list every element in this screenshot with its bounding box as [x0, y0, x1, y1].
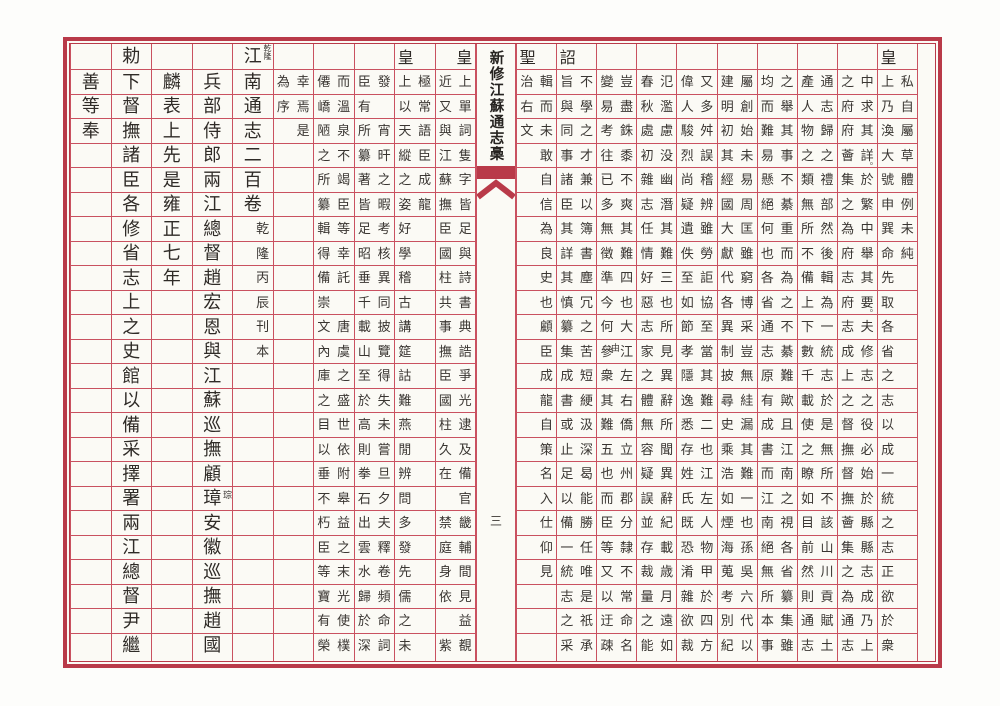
main-text-char: 顧	[193, 463, 233, 485]
grid-cell: 儒	[395, 584, 435, 609]
small-text-char-right: 光	[455, 393, 475, 408]
small-text-char-right: 是	[817, 417, 837, 432]
grid-cell	[71, 461, 111, 486]
small-text-char-right: 窮	[737, 270, 757, 285]
grid-cell: 志上	[838, 633, 877, 658]
small-text-char-right: 且	[777, 417, 797, 432]
grid-cell: 安	[193, 510, 233, 535]
grid-cell: 撫誥	[436, 339, 476, 364]
honorific-band	[274, 44, 314, 69]
small-text-char-right: 其	[697, 368, 717, 383]
small-text-char-right: 誥	[455, 344, 475, 359]
small-text-char-right: 中	[857, 221, 877, 236]
grid-cell: 各	[878, 314, 917, 339]
small-text-char-right: 考	[374, 221, 394, 236]
small-text-char-left: 惡	[637, 295, 657, 310]
small-text-char-right: 統	[817, 344, 837, 359]
grid-cell: 以常	[597, 584, 636, 609]
small-text-char-right: 當	[697, 344, 717, 359]
small-text-char-right: 未	[737, 148, 757, 163]
small-text-char-right: 博	[737, 295, 757, 310]
small-text-char-right: 極	[415, 74, 435, 89]
small-text-char-left: 為	[274, 74, 294, 89]
grid-cell: 裁歳	[637, 559, 676, 584]
grid-cell: 自	[517, 412, 556, 437]
honorific-band: 皇	[436, 44, 476, 69]
small-text-char-right: 宵	[374, 123, 394, 138]
grid-cell: 朽益	[314, 510, 354, 535]
small-text-char-left: 今	[597, 295, 617, 310]
grid-cell: 並紀	[637, 510, 676, 535]
small-text-char-left: 庫	[314, 368, 334, 383]
small-text-char-right: 與	[455, 246, 475, 261]
small-text-char-right: 詎	[697, 270, 717, 285]
grid-cell: 辰	[233, 290, 273, 315]
small-text-char-left: 上	[838, 368, 858, 383]
grid-cell	[274, 633, 314, 658]
grid-cell: 考銖	[597, 118, 636, 143]
grid-cell	[152, 388, 192, 413]
honorific-band	[718, 44, 757, 69]
main-text-char: 下	[112, 71, 152, 93]
small-text-char-left: 志	[878, 540, 898, 555]
small-text-char-right: 夫	[374, 515, 394, 530]
grid-cell: 所宵	[355, 118, 395, 143]
small-text-char-right: 後	[817, 246, 837, 261]
small-text-char-left: 千	[798, 368, 818, 383]
small-text-char-left: 國	[718, 197, 738, 212]
small-text-char-left: 成	[557, 368, 577, 383]
grid-cell: 志	[878, 535, 917, 560]
small-text-char-right: 臣	[537, 344, 557, 359]
left-text-column-9: 勅下督撫諸臣各修省志上之史館以備采擇署兩江總督尹繼	[112, 44, 153, 661]
small-text-char-right: 集	[777, 613, 797, 628]
small-text-char-left: 發	[395, 540, 415, 555]
small-text-char-right: 四	[617, 270, 637, 285]
small-text-char-left: 拳	[355, 466, 375, 481]
main-text-char: 等	[71, 95, 111, 117]
small-text-char-left: 紀	[718, 638, 738, 653]
grid-cell: 序焉	[274, 94, 314, 119]
grid-cell: 前山	[798, 535, 837, 560]
small-text-char-right: 省	[777, 564, 797, 579]
small-text-char-left: 疑	[677, 197, 697, 212]
small-text-char-left: 無	[637, 417, 657, 432]
small-text-char-left: 臣	[436, 221, 456, 236]
main-text-char: 督	[112, 585, 152, 607]
small-text-char-left: 得	[314, 246, 334, 261]
small-text-char-left: 衆	[878, 638, 898, 653]
grid-cell: 水卷	[355, 559, 395, 584]
grid-cell: 江	[193, 363, 233, 388]
grid-cell: 上為	[798, 290, 837, 315]
grid-cell	[274, 461, 314, 486]
grid-cell: 駿舛	[677, 118, 716, 143]
grid-cell	[274, 559, 314, 584]
small-text-char-right: 泉	[334, 123, 354, 138]
honorific-band: 詔	[557, 44, 596, 69]
small-text-char-right: 不	[817, 491, 837, 506]
grid-cell: 隆	[233, 241, 273, 266]
left-text-column-10: 善等奉	[70, 44, 112, 661]
grid-cell: 雜幽	[637, 167, 676, 192]
grid-cell: 體辭	[637, 388, 676, 413]
grid-cell: 南	[233, 69, 273, 94]
small-text-char-left: 懸	[758, 172, 778, 187]
small-text-char-left: 難	[597, 417, 617, 432]
small-text-char-left: 皆	[355, 197, 375, 212]
grid-cell: 備	[112, 412, 152, 437]
grid-cell: 又單	[436, 94, 476, 119]
small-text-char-right: 川	[817, 564, 837, 579]
small-text-char-left: 朽	[314, 515, 334, 530]
grid-cell: 等末	[314, 559, 354, 584]
grid-cell: 五立	[597, 437, 636, 462]
grid-cell: 史漏	[718, 412, 757, 437]
grid-cell: 榮樸	[314, 633, 354, 658]
small-text-char-left: 疑	[637, 466, 657, 481]
grid-cell: 上志	[838, 363, 877, 388]
grid-cell	[233, 510, 273, 535]
small-text-char-right: 名	[617, 638, 637, 653]
grid-cell	[233, 608, 273, 633]
small-text-char-left: 高	[355, 417, 375, 432]
small-text-char-right: 詩	[455, 270, 475, 285]
grid-cell: 難	[395, 388, 435, 413]
small-text-char-left: 本	[758, 613, 778, 628]
grid-cell: 孝當	[677, 339, 716, 364]
small-text-char-left: 渙	[878, 123, 898, 138]
small-text-char-left: 史	[718, 417, 738, 432]
main-text-char: 之	[112, 316, 152, 338]
grid-cell	[71, 290, 111, 315]
small-text-char-right: 冗	[577, 295, 597, 310]
main-text-char: 擇	[112, 463, 152, 485]
small-text-char-right: 易	[737, 172, 757, 187]
small-text-char-left: 之	[395, 613, 415, 628]
grid-cell: 成短	[557, 363, 596, 388]
small-text-char-right: 甲	[697, 564, 717, 579]
grid-cell: 淆甲	[677, 559, 716, 584]
grid-cell: 擇	[112, 461, 152, 486]
grid-cell	[152, 633, 192, 658]
grid-cell	[274, 339, 314, 364]
small-text-char-right: 其	[657, 221, 677, 236]
grid-cell: 易事	[758, 143, 797, 168]
small-text-char-left: 諸	[557, 172, 577, 187]
small-text-char-right: 志	[857, 564, 877, 579]
grid-cell: 先	[395, 559, 435, 584]
raised-honorific-char: 詔	[560, 44, 576, 68]
small-text-char-left: 佚	[677, 246, 697, 261]
main-text-char: 巡	[193, 414, 233, 436]
small-text-char-right: 采	[737, 319, 757, 334]
small-text-char-left: 迂	[597, 613, 617, 628]
grid-cell	[71, 510, 111, 535]
main-text-char: 宏	[193, 291, 233, 313]
small-text-char-left: 著	[355, 172, 375, 187]
small-text-char-left: 通	[758, 319, 778, 334]
main-text-char: 表	[152, 95, 192, 117]
grid-cell: 集苦	[557, 339, 596, 364]
small-text-char-right: 而	[777, 246, 797, 261]
grid-cell: 下	[112, 69, 152, 94]
grid-cell: 拳旦	[355, 461, 395, 486]
grid-cell: 與學	[557, 94, 596, 119]
grid-cell: 申例	[878, 192, 917, 217]
small-text-char-right: 該	[817, 515, 837, 530]
small-text-char-right: 顧	[537, 319, 557, 334]
small-text-char-right: 卷	[374, 564, 394, 579]
small-text-char-right: 僑	[617, 417, 637, 432]
grid-cell: 奉	[71, 118, 111, 143]
grid-cell: 為中	[838, 216, 877, 241]
small-text-char-left: 薈	[838, 515, 858, 530]
grid-cell: 容聞	[637, 437, 676, 462]
small-text-char-left: 先	[395, 564, 415, 579]
grid-cell	[233, 633, 273, 658]
small-text-char-left: 姿	[395, 197, 415, 212]
tiny-annotation: 琮	[223, 491, 232, 500]
grid-cell: 上	[112, 290, 152, 315]
grid-cell: 年	[152, 265, 192, 290]
small-text-char-right: 異	[374, 270, 394, 285]
small-text-char-left: 量	[637, 589, 657, 604]
main-text-char: 先	[152, 144, 192, 166]
grid-cell: 煙也	[718, 510, 757, 535]
raised-honorific-char: 皇	[456, 44, 472, 68]
small-text-char-left: 命	[878, 246, 898, 261]
main-text-char: 志	[112, 267, 152, 289]
small-text-char-right: 短	[577, 368, 597, 383]
small-text-char-right: 輯	[817, 270, 837, 285]
grid-cell: 也州	[597, 461, 636, 486]
grid-cell: 閒	[395, 437, 435, 462]
honorific-band: 勅	[112, 44, 152, 69]
small-text-char-right: 承	[577, 638, 597, 653]
small-text-char-left: 統	[878, 491, 898, 506]
grid-cell: 烈誤	[677, 143, 716, 168]
grid-cell: 今也	[597, 290, 636, 315]
grid-cell: 瞭所	[798, 461, 837, 486]
small-text-char-right: 役	[857, 417, 877, 432]
small-text-char-left: 近	[436, 74, 456, 89]
small-text-char-left: 秋	[637, 99, 657, 114]
grid-cell: 名	[517, 461, 556, 486]
main-text-char: 繼	[112, 634, 152, 656]
small-text-char-right: 之	[777, 74, 797, 89]
small-text-char-left: 處	[637, 123, 657, 138]
small-text-char-right: 異	[657, 466, 677, 481]
small-text-char-left: 而	[597, 491, 617, 506]
grid-cell: 丙	[233, 265, 273, 290]
small-text-char-left: 欲	[677, 613, 697, 628]
small-text-char-right: 不	[577, 74, 597, 89]
small-text-char-left: 所	[355, 123, 375, 138]
small-text-char-right: 命	[617, 613, 637, 628]
small-text-char-right: 之	[857, 393, 877, 408]
grid-cell: 止深	[557, 437, 596, 462]
grid-cell: 省之	[758, 290, 797, 315]
small-text-char-right: 禮	[817, 172, 837, 187]
small-text-char-right: 其	[737, 442, 757, 457]
grid-cell: 府舉	[838, 241, 877, 266]
small-text-char-left: 存	[637, 540, 657, 555]
small-text-char-right: 無	[737, 368, 757, 383]
grid-cell: 號體	[878, 167, 917, 192]
small-text-char-right: 賦	[817, 613, 837, 628]
small-text-char-right: 夫	[857, 319, 877, 334]
small-text-char-right: 見	[455, 589, 475, 604]
left-text-column-1: 皇近上又單與詞江隻蘇字撫皆臣足國與柱詩共書事典撫誥臣爭國光柱逮久及在備官禁畿庭輔…	[436, 44, 477, 661]
small-text-char-left: 古	[395, 295, 415, 310]
main-text-char: 撫	[112, 120, 152, 142]
small-text-char-right: 難	[777, 368, 797, 383]
grid-cell: 通不	[758, 314, 797, 339]
small-text-char-left: 榮	[314, 638, 334, 653]
grid-cell: 偉又	[677, 69, 716, 94]
small-text-char-right: 大	[617, 319, 637, 334]
small-text-char-left: 則	[355, 442, 375, 457]
grid-cell: 隱其	[677, 363, 716, 388]
grid-cell: 易盡	[597, 94, 636, 119]
grid-cell: 之	[878, 510, 917, 535]
grid-cell: 披無	[718, 363, 757, 388]
small-text-char-left: 通	[798, 613, 818, 628]
grid-cell: 則貢	[798, 584, 837, 609]
small-text-char-right: 於	[697, 589, 717, 604]
small-text-char-left: 集	[838, 540, 858, 555]
small-text-char-left: 出	[355, 515, 375, 530]
book-title: 新修江蘇通志槀	[486, 50, 507, 162]
grid-cell	[233, 559, 273, 584]
small-text-char-right: 六	[737, 589, 757, 604]
grid-cell	[517, 584, 556, 609]
small-text-char-left: 之	[878, 515, 898, 530]
grid-cell: 著之	[355, 167, 395, 192]
small-text-char-right: 一	[737, 491, 757, 506]
small-text-char-left: 好	[395, 221, 415, 236]
small-text-char-left: 事	[758, 638, 778, 653]
small-text-char-left: 以	[597, 589, 617, 604]
small-text-char-left: 又	[597, 564, 617, 579]
small-text-char-left: 撫	[436, 344, 456, 359]
right-margin-strip	[918, 44, 933, 661]
tiny-annotation: 由	[611, 344, 620, 353]
grid-cell: 昭核	[355, 241, 395, 266]
grid-cell: 一任	[557, 535, 596, 560]
small-text-char-right: 郡	[617, 491, 637, 506]
main-text-char: 南	[233, 71, 273, 93]
grid-cell: 制豈	[718, 339, 757, 364]
small-text-char-left: 成	[878, 442, 898, 457]
grid-cell: 如不	[798, 486, 837, 511]
small-text-char-right: 部	[817, 197, 837, 212]
grid-cell: 各博	[718, 290, 757, 315]
grid-cell: 嶠溫	[314, 94, 354, 119]
grid-cell: 采	[112, 437, 152, 462]
small-text-char-right: 不	[777, 319, 797, 334]
grid-cell: 事才	[557, 143, 596, 168]
small-text-char-left: 並	[637, 515, 657, 530]
grid-cell: 大草	[878, 143, 917, 168]
raised-honorific-char: 皇	[398, 44, 414, 68]
small-text-char-left: 初	[718, 123, 738, 138]
small-text-char-right: 異	[657, 368, 677, 383]
small-text-char-left: 之	[395, 172, 415, 187]
small-text-char-right: 南	[777, 466, 797, 481]
small-text-char-right: 方	[697, 638, 717, 653]
small-text-char-left: 僊	[314, 74, 334, 89]
grid-cell: 上私	[878, 69, 917, 94]
main-text-char: 上	[152, 120, 192, 142]
grid-cell	[152, 486, 192, 511]
grid-cell: 高未	[355, 412, 395, 437]
small-text-char-right: 中	[857, 74, 877, 89]
grid-cell	[152, 510, 192, 535]
small-text-char-right: 未	[374, 417, 394, 432]
left-text-column-3: 臣發有所宵纂旰著之皆暇足考昭核垂異千同載披山覽至得於失高未則嘗拳旦石夕出夫雲釋水…	[355, 44, 396, 661]
left-text-column-2: 皇上極以常天語縱臣之成姿龍好學稽古講筵詁難燕閒辨問多發先儒之未	[395, 44, 436, 661]
small-text-char-right: 屬	[737, 74, 757, 89]
small-text-char-right: 能	[577, 491, 597, 506]
small-text-char-right: 塵	[577, 270, 597, 285]
grid-cell: 本集	[758, 608, 797, 633]
small-text-char-right: 未	[897, 221, 917, 236]
grid-cell: 趙	[193, 265, 233, 290]
small-text-char-left: 府	[838, 99, 858, 114]
grid-cell: 以常	[395, 94, 435, 119]
small-text-char-right: 也	[657, 295, 677, 310]
main-text-char: 趙	[193, 267, 233, 289]
small-text-char-right: 以	[737, 638, 757, 653]
honorific-band	[314, 44, 354, 69]
small-text-char-right: 物	[697, 540, 717, 555]
grid-cell: 之中	[838, 69, 877, 94]
grid-cell	[71, 388, 111, 413]
small-text-char-left: 逸	[677, 393, 697, 408]
grid-cell: 志土	[798, 633, 837, 658]
grid-cell	[233, 437, 273, 462]
center-spine-column: 新修江蘇通志槀 三	[476, 44, 516, 661]
grid-cell: 官	[436, 486, 476, 511]
small-text-char-left: 志	[637, 319, 657, 334]
small-text-char-right: 舛	[697, 123, 717, 138]
small-text-char-left: 下	[798, 319, 818, 334]
main-text-char: 部	[193, 95, 233, 117]
small-text-char-left: 志	[557, 589, 577, 604]
small-text-char-right: 同	[374, 295, 394, 310]
small-text-char-right: 丙	[253, 270, 273, 285]
small-text-char-left: 披	[718, 368, 738, 383]
grid-cell: 何大	[597, 314, 636, 339]
small-text-char-right: 自	[537, 172, 557, 187]
small-text-char-right: 勝	[577, 515, 597, 530]
small-text-char-left: 督	[838, 466, 858, 481]
small-text-char-right: 也	[737, 515, 757, 530]
grid-cell: 通	[233, 94, 273, 119]
small-text-char-left: 山	[355, 344, 375, 359]
grid-cell: 家見	[637, 339, 676, 364]
grid-cell: 輯等	[314, 216, 354, 241]
small-text-char-left: 稽	[395, 270, 415, 285]
grid-cell: 一	[878, 461, 917, 486]
grid-cell	[71, 339, 111, 364]
left-text-column-8: 麟表上先是雍正七年	[152, 44, 193, 661]
small-text-char-left: 隱	[677, 368, 697, 383]
small-text-char-left: 以	[314, 442, 334, 457]
grid-cell: 志所	[637, 314, 676, 339]
